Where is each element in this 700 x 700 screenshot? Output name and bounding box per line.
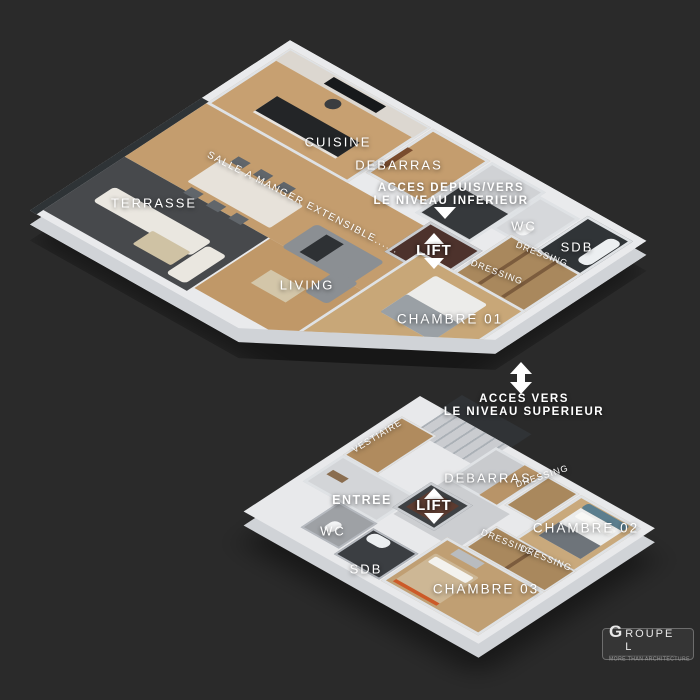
lift-marker-lower: LIFT [413,488,455,524]
logo-tagline: MORE THAN ARCHITECTURE [609,656,675,663]
label-living: LIVING [280,278,335,293]
logo-brand: G ROUPE L [609,625,687,654]
down-arrow-part [510,382,532,394]
label-access-mid-line1: ACCES VERS [479,393,569,405]
label-wc-lower: WC [320,524,346,539]
lift-marker-upper: LIFT [413,233,455,269]
logo-initial: G [609,625,624,638]
groupe-l-logo: G ROUPE L MORE THAN ARCHITECTURE [602,628,694,660]
up-arrow-part [510,362,532,374]
label-entree: ENTREE [332,493,392,507]
lift-label-lower: LIFT [416,499,452,513]
label-debarras-upper: DEBARRAS [355,158,443,173]
label-access-upper-line1: ACCES DEPUIS/VERS [378,182,524,194]
lift-down-arrow-icon [424,513,444,524]
updown-arrow-icon [509,362,533,394]
label-chambre-02: CHAMBRE 02 [533,521,639,536]
logo-rest: ROUPE L [625,628,687,654]
label-terrasse: TERRASSE [111,196,197,211]
label-sdb-lower: SDB [350,562,383,577]
label-cuisine: CUISINE [305,135,372,150]
floorplan-render: TERRASSE CUISINE DEBARRAS SALLE A MANGER… [0,0,700,700]
access-upper-down-arrow-icon [434,207,456,219]
label-wc-upper: WC [511,219,537,234]
label-access-mid-line2: LE NIVEAU SUPERIEUR [444,406,604,418]
arrow-stem [517,374,525,382]
label-chambre-03: CHAMBRE 03 [433,582,539,597]
lift-down-arrow-icon [424,258,444,269]
label-sdb-upper: SDB [561,240,594,255]
lift-label-upper: LIFT [416,244,452,258]
label-chambre-01: CHAMBRE 01 [397,312,503,327]
label-access-upper-line2: LE NIVEAU INFERIEUR [373,195,528,207]
